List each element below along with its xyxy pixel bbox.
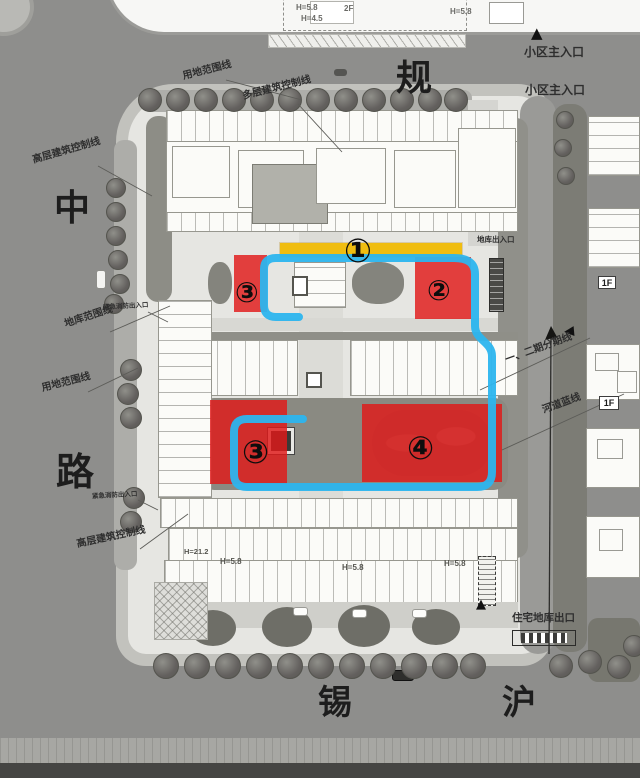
floor-1f-badge: 1F (598, 276, 616, 289)
route-line (234, 258, 492, 487)
main-entrance-label-1: 小区主入口 (524, 46, 584, 58)
zone-3a-number: ③ (235, 279, 259, 307)
height-label: H=5.8 (450, 8, 472, 16)
height-label: H=5.8 (220, 558, 242, 566)
zone-3b-number: ③ (242, 436, 269, 468)
street-name-top: 规 (396, 60, 432, 96)
zone-2-number: ② (427, 277, 451, 305)
street-name-left-1: 中 (54, 190, 90, 226)
street-name-bottom-2: 沪 (502, 686, 536, 720)
height-label: H=21.2 (184, 548, 208, 556)
height-label: H=5.8 (296, 4, 318, 12)
floor-1f-badge: 1F (599, 396, 619, 410)
main-entrance-arrow-icon: ▲ (531, 26, 543, 41)
zone-4-number: ④ (407, 432, 434, 464)
residential-garage-exit-label: 住宅地库出口 (512, 613, 575, 624)
height-label: H=5.8 (342, 564, 364, 572)
main-entrance-label-2: 小区主入口 (525, 84, 585, 96)
garage-entrance-label: 地库出入口 (477, 236, 515, 244)
height-label: H=4.5 (301, 15, 323, 23)
route-overlay (0, 0, 640, 778)
street-name-left-2: 路 (56, 454, 94, 492)
height-label: H=5.8 (444, 560, 466, 568)
site-plan: ① ② ③ ③ ④ ▲ ▲ ▲ 规 中 路 锡 沪 小区主入口 小区主入口 地库… (0, 0, 640, 778)
floor-label: 2F (344, 5, 353, 13)
garage-exit-arrow-icon: ▲ (476, 598, 486, 611)
zone-1-number: ① (344, 234, 372, 267)
street-name-bottom-1: 锡 (318, 686, 352, 720)
